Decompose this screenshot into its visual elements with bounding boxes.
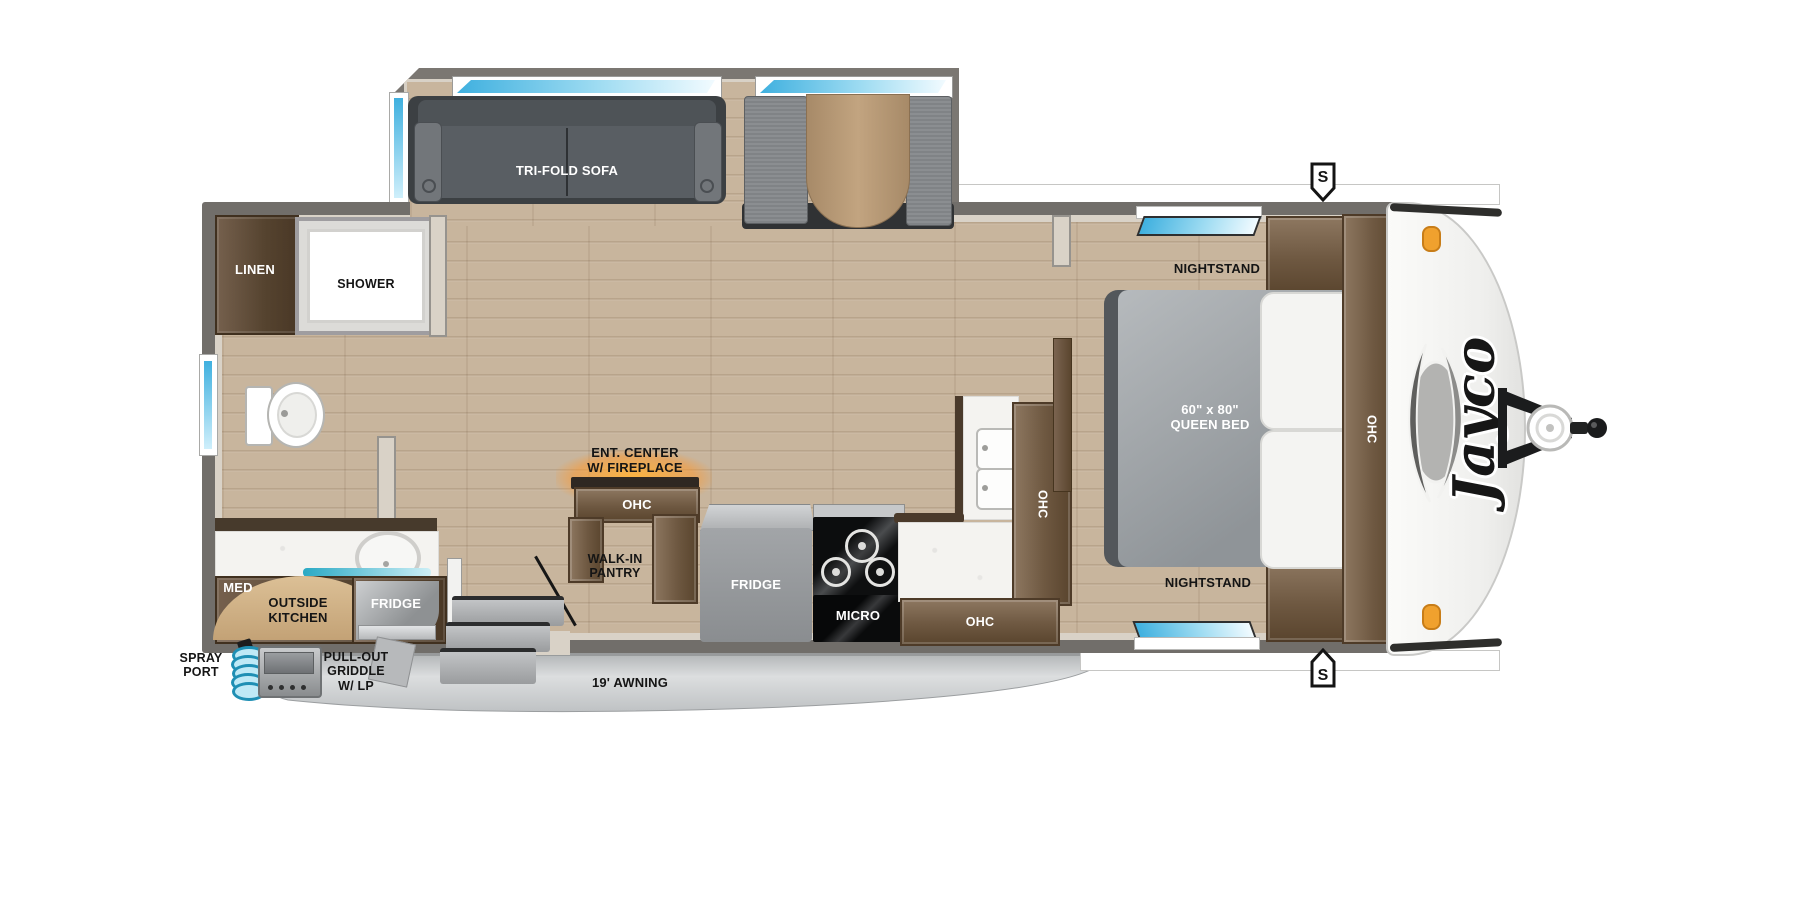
burner-icon — [821, 557, 851, 587]
bath-window — [199, 354, 218, 456]
hitch — [1498, 380, 1620, 476]
ohc-lower-label: OHC — [966, 615, 994, 629]
fridge-flap — [695, 504, 815, 531]
walk-in-pantry-label: WALK-IN PANTRY — [560, 552, 670, 581]
tri-fold-sofa-label: TRI-FOLD SOFA — [408, 164, 726, 179]
cupholder-icon — [700, 179, 714, 193]
queen-bed: 60" x 80" QUEEN BED — [1104, 290, 1344, 567]
bedroom-window-bottom-frame — [1134, 637, 1260, 650]
entry-step — [440, 648, 536, 684]
bedroom-half-wall — [1053, 338, 1072, 492]
marker-badge-top: S — [1310, 162, 1336, 202]
bedroom-ohc-label: OHC — [1364, 415, 1378, 443]
cupholder-icon — [422, 179, 436, 193]
dinette-bench-left — [744, 96, 808, 224]
nightstand-top-label: NIGHTSTAND — [1162, 262, 1272, 277]
ent-center-label: ENT. CENTER W/ FIREPLACE — [555, 446, 715, 476]
slideout-window-top-left — [452, 76, 722, 98]
fridge-label: FRIDGE — [700, 578, 812, 593]
bedroom-wall-stub — [1052, 215, 1071, 267]
tri-fold-sofa: TRI-FOLD SOFA — [408, 96, 726, 206]
clearance-light-bottom — [1422, 604, 1441, 630]
awning-label: 19' AWNING — [560, 676, 700, 691]
linen-label: LINEN — [215, 263, 295, 278]
toilet — [245, 382, 323, 446]
svg-text:S: S — [1318, 169, 1329, 186]
bedroom-window-top — [1136, 216, 1261, 236]
spray-port-label: SPRAY PORT — [172, 651, 230, 680]
outside-kitchen-label: OUTSIDE KITCHEN — [250, 596, 346, 626]
queen-bed-label: 60" x 80" QUEEN BED — [1144, 403, 1276, 433]
stove-cooktop — [813, 517, 903, 597]
coupler-icon — [1570, 422, 1588, 434]
griddle-label: PULL-OUT GRIDDLE W/ LP — [312, 650, 400, 693]
shower-label: SHOWER — [299, 277, 433, 291]
nightstand-bottom-label: NIGHTSTAND — [1152, 576, 1264, 591]
floorplan: TRI-FOLD SOFA LINEN SHOWER MED OUTSIDE K… — [0, 0, 1800, 920]
svg-text:S: S — [1318, 667, 1329, 684]
bath-counter-edge — [215, 518, 437, 531]
nightstand-top — [1266, 216, 1348, 296]
microwave-label: MICRO — [813, 609, 903, 624]
dinette-bench-right — [906, 96, 952, 226]
outside-fridge-label: FRIDGE — [356, 597, 436, 612]
ent-center-ohc-label: OHC — [622, 498, 652, 513]
kitchen-counter-lower — [898, 522, 1019, 602]
shower: SHOWER — [295, 217, 437, 335]
ohc-lower: OHC — [900, 598, 1060, 646]
dinette-table — [806, 94, 910, 228]
nightstand-bottom — [1266, 560, 1348, 642]
bath-wall-upper — [429, 215, 447, 337]
hitch-ball-icon — [1587, 418, 1607, 438]
roof-edge-bottom — [1080, 650, 1500, 671]
slideout-window-left — [389, 92, 409, 206]
burner-icon — [865, 557, 895, 587]
ohc-tall-label: OHC — [1035, 490, 1049, 518]
med-label: MED — [218, 581, 258, 596]
clearance-light-top — [1422, 226, 1441, 252]
marker-badge-bottom: S — [1310, 648, 1336, 688]
